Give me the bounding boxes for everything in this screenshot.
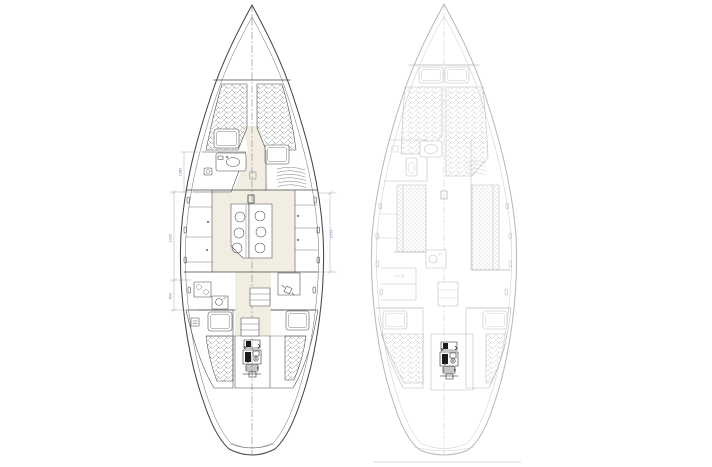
companionway-steps: [250, 288, 270, 306]
nav-station: [271, 273, 315, 310]
head-counter: [420, 141, 442, 157]
companionway-steps: [438, 282, 458, 306]
dim-label-head: 1980: [179, 168, 183, 177]
nav-table: [278, 273, 300, 295]
right-plan: [371, 4, 521, 462]
quarter-berth-port: [186, 310, 233, 388]
table-leaf-starboard: [249, 204, 272, 258]
quarter-berth-pillow-port: [208, 312, 232, 331]
vberth-pillow-starboard: [265, 145, 289, 164]
dim-label-salon-port: 2000: [169, 234, 173, 243]
arrow-icon: [394, 274, 404, 279]
quarter-berth-starboard: [271, 310, 318, 388]
seacock-fitting: [191, 318, 199, 326]
galley-stove: [194, 282, 211, 297]
vberth-cushion-starboard: [446, 87, 488, 176]
engine-room: [431, 334, 473, 390]
vberth-pillow-port: [214, 129, 239, 148]
dim-label-salon-starboard: 2070: [330, 230, 334, 239]
head-counter: [216, 153, 246, 171]
head-toilet: [204, 168, 212, 175]
drawing-canvas: 1980 2000 850 2070: [0, 0, 712, 467]
port-settee: [378, 185, 426, 252]
galley: [189, 282, 235, 310]
head-locker: [392, 146, 398, 152]
quarter-berth-port: [376, 308, 423, 388]
engine: [440, 342, 458, 379]
head-toilet: [406, 158, 417, 176]
salon-table: [231, 204, 272, 258]
yacht-layout-drawing: 1980 2000 850 2070: [0, 0, 712, 467]
vberth-cushion-starboard: [257, 84, 296, 150]
engine-step-box: [241, 318, 259, 336]
galley: [381, 250, 446, 300]
left-plan: 1980 2000 850 2070: [169, 5, 337, 455]
galley-sink: [212, 296, 228, 309]
dim-label-galley-port: 850: [169, 293, 173, 299]
port-lockers: [186, 190, 212, 272]
